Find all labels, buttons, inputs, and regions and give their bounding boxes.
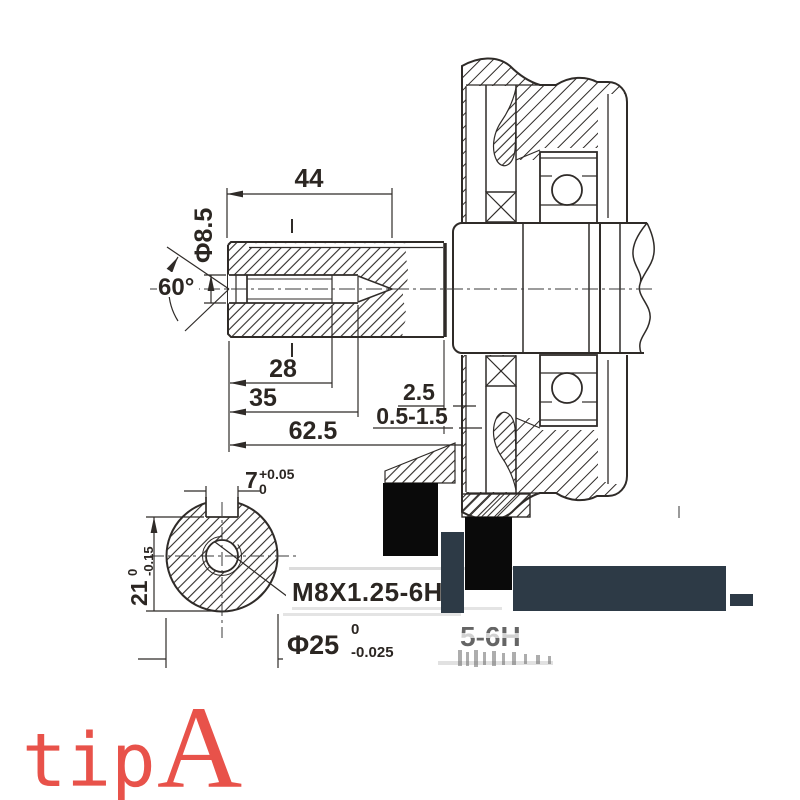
crankshaft-section-drawing: 44 Φ8.5 60° 28 35 62.5 2.5 0.5-1.5 7 +0.… (0, 0, 800, 800)
caption-letter: A (157, 682, 242, 800)
dim-keyway-height: 21 0 -0.15 (125, 546, 156, 606)
svg-text:0: 0 (259, 481, 267, 497)
dim-60deg: 60° (158, 274, 194, 301)
dim-44: 44 (295, 163, 324, 193)
mounting-foot-strip (462, 494, 530, 517)
dim-keyway-width: 7 +0.05 0 (245, 466, 295, 497)
caption: tip A (22, 682, 242, 800)
crankcase-section-top (462, 58, 627, 223)
svg-text:21: 21 (126, 580, 152, 606)
dim-62-5: 62.5 (289, 417, 338, 445)
ghost-text-remnant: 5-6H (452, 618, 570, 667)
svg-text:0: 0 (125, 569, 140, 576)
svg-text:-0.025: -0.025 (351, 644, 394, 661)
svg-text:+0.05: +0.05 (259, 466, 295, 482)
dim-28: 28 (269, 355, 297, 383)
ball-bearing-bottom (540, 355, 597, 426)
crankshaft-journal (600, 223, 654, 353)
dim-dia8-5: Φ8.5 (190, 208, 218, 263)
svg-text:-0.15: -0.15 (141, 546, 156, 576)
svg-text:Φ25: Φ25 (287, 630, 339, 660)
caption-word: tip (22, 718, 156, 800)
technical-drawing-page: 44 Φ8.5 60° 28 35 62.5 2.5 0.5-1.5 7 +0.… (0, 0, 800, 800)
crankshaft-hub (453, 223, 600, 353)
oil-seal-box-top (486, 192, 516, 222)
redaction-black-1 (383, 483, 438, 556)
dim-0-5-1-5: 0.5-1.5 (376, 403, 448, 429)
break-line (633, 223, 654, 353)
svg-text:7: 7 (245, 467, 258, 493)
ball-bearing-top (540, 152, 597, 223)
thread-spec-note: M8X1.25-6H (292, 577, 443, 607)
redaction-navy-1 (441, 532, 464, 613)
redaction-navy-2 (513, 566, 726, 611)
oil-seal-box-bottom (486, 356, 516, 386)
redaction-navy-dash (730, 594, 753, 606)
svg-text:0: 0 (351, 621, 359, 638)
redaction-black-2 (465, 517, 512, 590)
dim-35: 35 (249, 384, 277, 412)
dim-2-5: 2.5 (403, 379, 435, 405)
mounting-foot-wedge (385, 443, 455, 483)
